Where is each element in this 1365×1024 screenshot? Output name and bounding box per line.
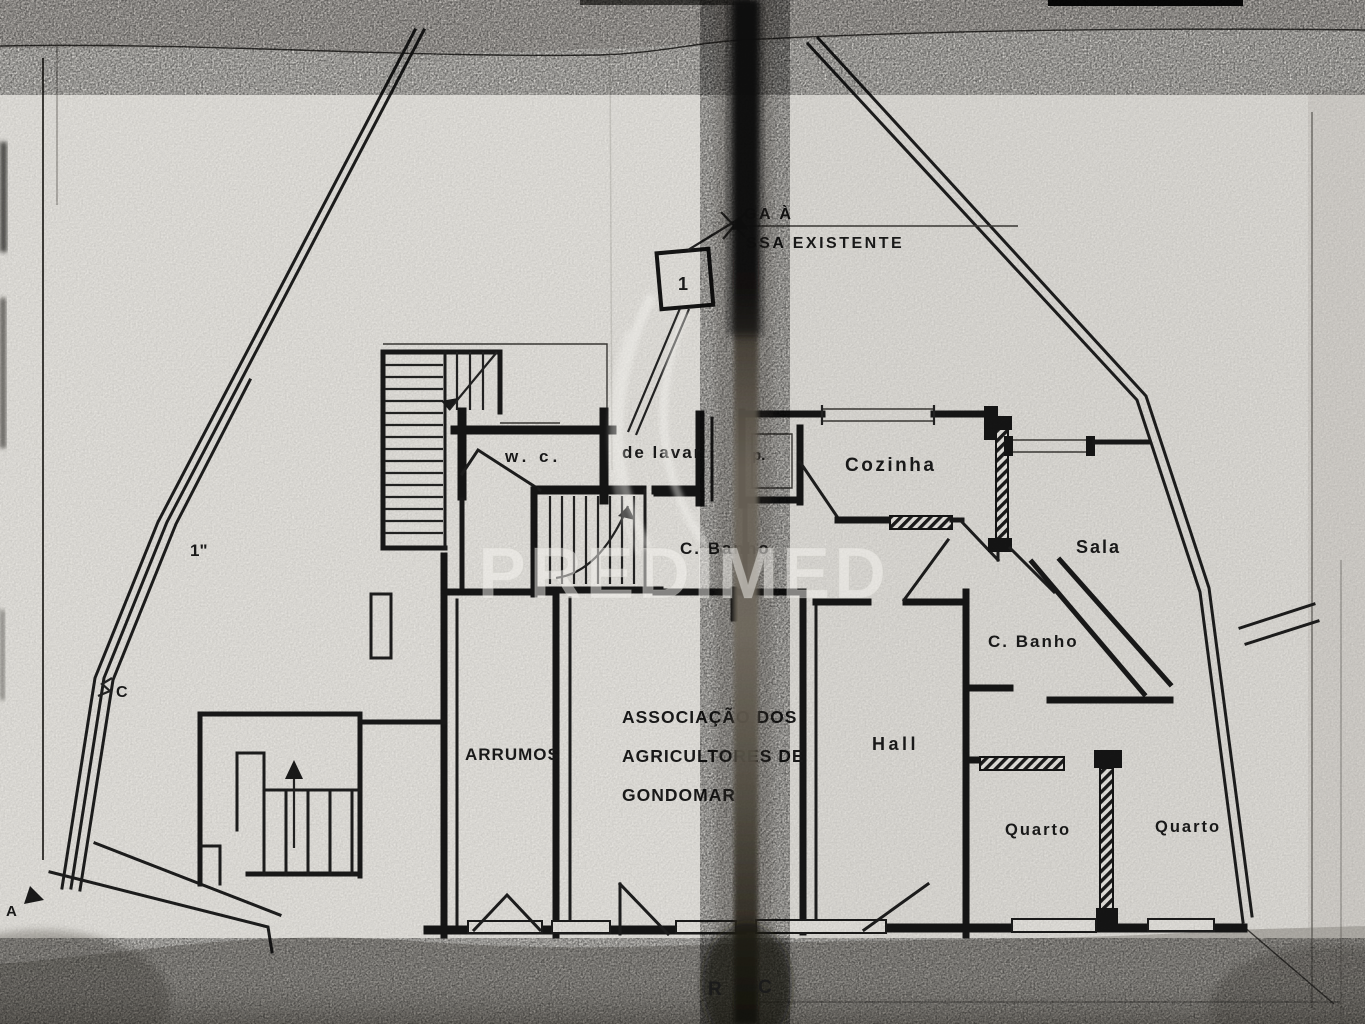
floor-label-right: C bbox=[758, 977, 772, 998]
watermark-text: PREDIMED bbox=[478, 534, 890, 614]
floor-plan-drawing: w. c. de lavar p. Cozinha Sala C. Banho … bbox=[0, 0, 1365, 1024]
scanned-floor-plan-page: w. c. de lavar p. Cozinha Sala C. Banho … bbox=[0, 0, 1365, 1024]
floor-label-left: R bbox=[708, 979, 722, 1000]
